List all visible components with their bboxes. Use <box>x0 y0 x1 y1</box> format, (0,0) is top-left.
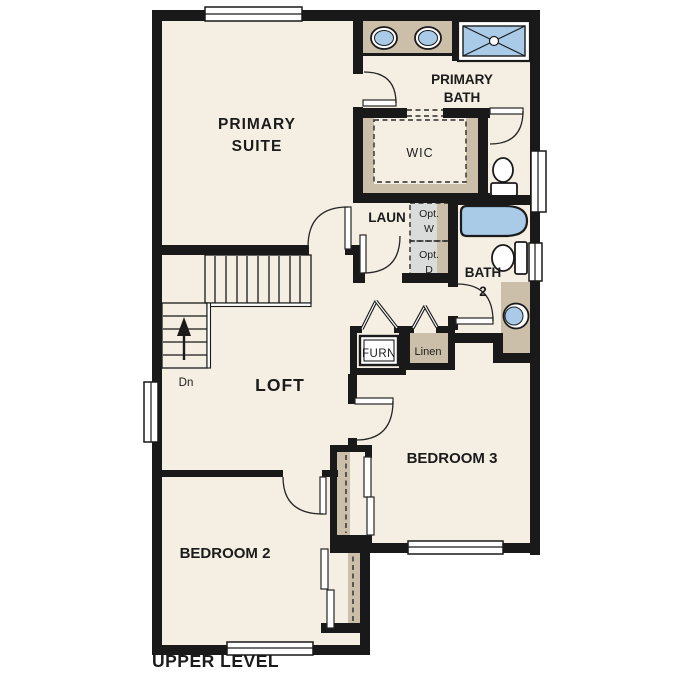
loft-label: LOFT <box>255 375 305 395</box>
furnace-label: FURN <box>362 348 396 360</box>
floor-plan-page: Dn <box>0 0 687 687</box>
window-primary-bath-right <box>531 151 546 212</box>
opt-washer-label-2: W <box>424 223 434 235</box>
window-bedroom3-bottom <box>408 541 503 554</box>
shower <box>458 21 530 61</box>
bath2-label-1: BATH <box>465 265 502 280</box>
shower-drain <box>490 37 499 46</box>
stair-landing-edge <box>207 303 311 307</box>
opt-washer-label-1: Opt. <box>419 208 439 220</box>
primary-bath-label-1: PRIMARY <box>431 72 493 87</box>
primary-suite-label-1: PRIMARY <box>218 116 296 133</box>
laundry-label: LAUN <box>368 210 406 225</box>
bedroom3-label: BEDROOM 3 <box>407 450 498 467</box>
vanity-sink-left <box>371 27 397 49</box>
primary-suite-label-2: SUITE <box>232 138 283 155</box>
stair-down-label: Dn <box>179 377 194 389</box>
window-primary-suite-top <box>205 7 302 21</box>
opt-dryer-label-2: D <box>425 264 433 276</box>
bath2-label-2: 2 <box>479 284 487 299</box>
bedroom2-label: BEDROOM 2 <box>180 545 271 562</box>
wic-opening <box>407 108 443 118</box>
bathtub <box>461 206 527 236</box>
floor-plan: Dn <box>0 0 687 687</box>
bath2-sink <box>504 304 529 329</box>
linen-label: Linen <box>415 346 442 358</box>
window-bath2-right <box>529 243 542 281</box>
opt-dryer-label-1: Opt. <box>419 249 439 261</box>
bedroom3-closet <box>337 452 350 535</box>
primary-bath-label-2: BATH <box>444 90 481 105</box>
bedroom2-closet <box>348 545 362 623</box>
window-loft-left <box>144 382 158 442</box>
vanity-sink-right <box>415 27 441 49</box>
wic-label: WIC <box>406 146 433 160</box>
plan-title: UPPER LEVEL <box>152 651 279 671</box>
